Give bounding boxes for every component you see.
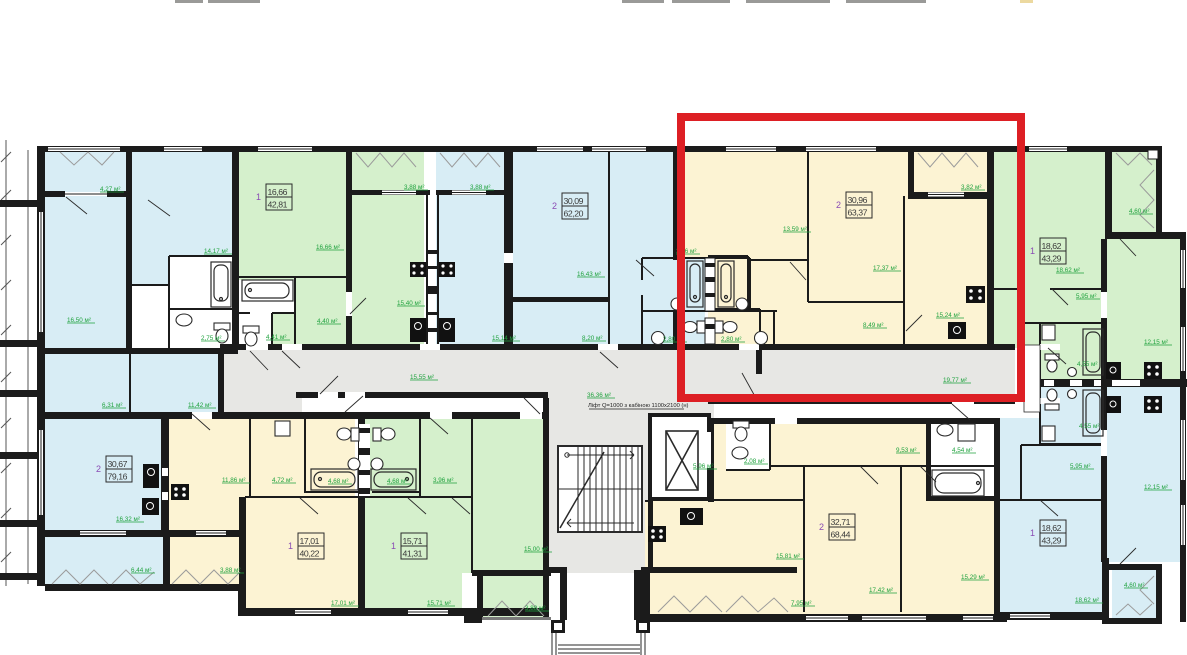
svg-text:63,37: 63,37 [848, 208, 868, 218]
svg-text:1: 1 [256, 192, 261, 202]
svg-text:43,29: 43,29 [1042, 536, 1062, 546]
svg-text:2: 2 [96, 464, 101, 474]
svg-text:40,22: 40,22 [300, 549, 320, 559]
svg-text:2: 2 [819, 522, 824, 532]
svg-text:32,71: 32,71 [831, 517, 851, 527]
svg-text:1: 1 [1030, 246, 1035, 256]
svg-text:Ліфт Q=1000 з кабіною 1100х210: Ліфт Q=1000 з кабіною 1100х2100 (н) [588, 403, 689, 409]
svg-text:16,66: 16,66 [268, 187, 288, 197]
svg-text:2: 2 [836, 200, 841, 210]
svg-text:1: 1 [288, 541, 293, 551]
svg-text:30,09: 30,09 [564, 196, 584, 206]
svg-text:79,16: 79,16 [108, 472, 128, 482]
svg-text:1: 1 [391, 541, 396, 551]
svg-text:30,96: 30,96 [848, 195, 868, 205]
svg-text:41,31: 41,31 [403, 549, 423, 559]
svg-text:17,01: 17,01 [300, 536, 320, 546]
svg-text:62,20: 62,20 [564, 209, 584, 219]
svg-text:4,55 м²: 4,55 м² [1077, 361, 1097, 368]
svg-text:15,71: 15,71 [403, 536, 423, 546]
svg-text:42,81: 42,81 [268, 200, 288, 210]
svg-text:1: 1 [1030, 528, 1035, 538]
svg-text:43,29: 43,29 [1042, 254, 1062, 264]
svg-text:2: 2 [552, 201, 557, 211]
svg-text:4,55 м²: 4,55 м² [1079, 423, 1099, 430]
svg-text:68,44: 68,44 [831, 530, 851, 540]
svg-text:18,62: 18,62 [1042, 523, 1062, 533]
svg-text:30,67: 30,67 [108, 459, 128, 469]
svg-text:18,62: 18,62 [1042, 241, 1062, 251]
